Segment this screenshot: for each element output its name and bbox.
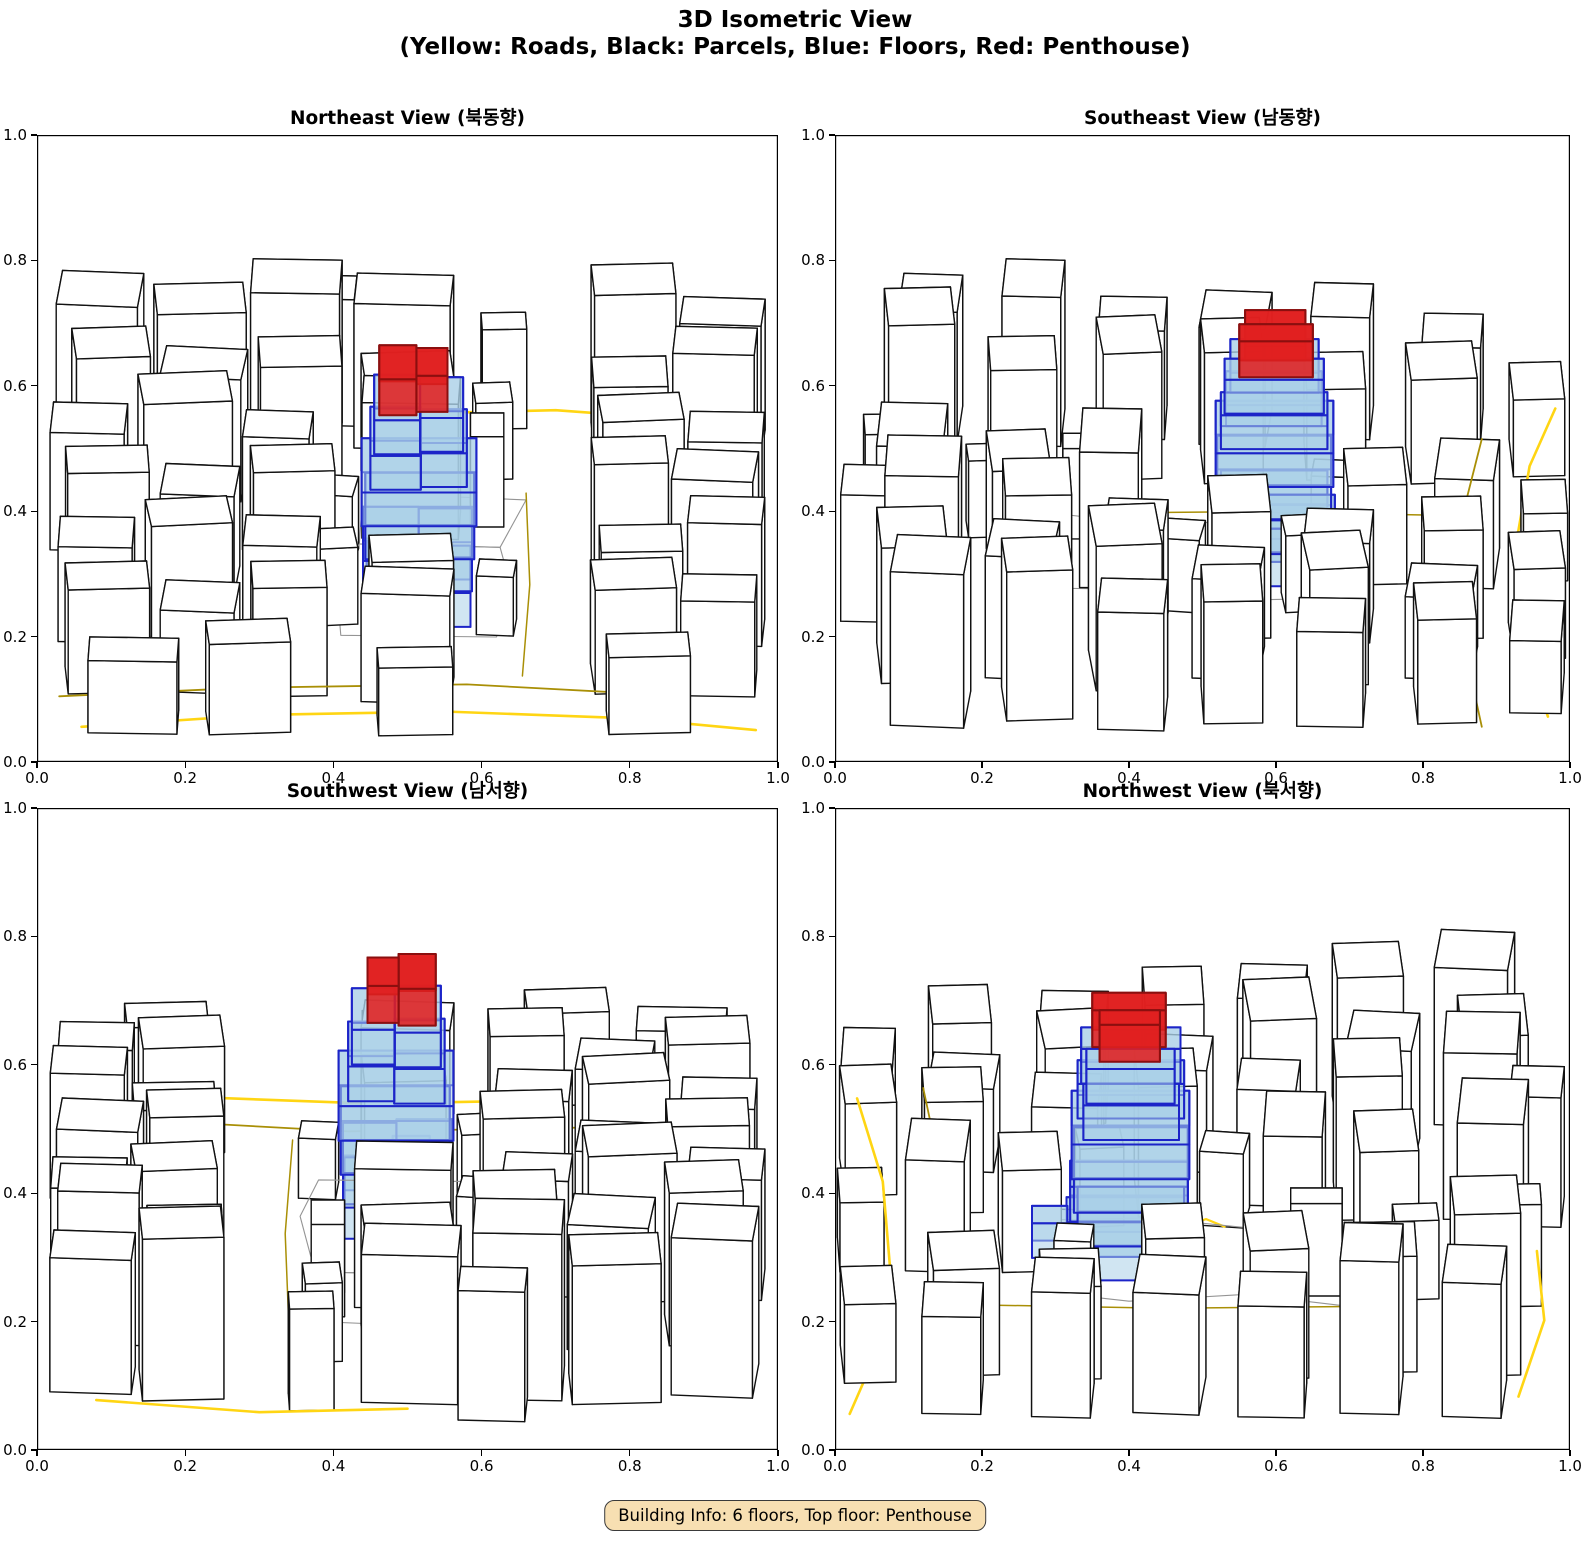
y-tick-label: 0.0	[781, 753, 825, 771]
y-tick	[829, 511, 835, 512]
subplot-title-northwest: Northwest View (북서향)	[835, 777, 1570, 803]
plot-canvas-southeast	[835, 135, 1570, 762]
y-tick	[31, 636, 37, 637]
y-tick	[31, 260, 37, 261]
building-info-badge: Building Info: 6 floors, Top floor: Pent…	[604, 1500, 986, 1531]
y-tick	[829, 761, 835, 762]
y-tick-label: 0.6	[0, 1056, 27, 1074]
x-tick	[1275, 1450, 1276, 1456]
x-tick	[185, 762, 186, 768]
y-tick	[829, 385, 835, 386]
y-tick-label: 0.4	[0, 502, 27, 520]
y-tick	[829, 260, 835, 261]
y-tick-label: 0.0	[0, 1441, 27, 1459]
y-tick	[31, 807, 37, 808]
x-tick-label: 0.0	[811, 1457, 859, 1475]
y-tick	[31, 1321, 37, 1322]
y-tick	[31, 385, 37, 386]
plot-canvas-southwest	[37, 808, 778, 1450]
y-tick-label: 0.2	[0, 628, 27, 646]
x-tick	[481, 1450, 482, 1456]
y-tick	[31, 511, 37, 512]
y-tick-label: 0.8	[781, 927, 825, 945]
y-tick	[31, 1449, 37, 1450]
x-tick	[834, 1450, 835, 1456]
x-tick	[629, 1450, 630, 1456]
y-tick-label: 1.0	[0, 126, 27, 144]
y-tick	[31, 761, 37, 762]
x-tick	[629, 762, 630, 768]
x-tick-label: 0.6	[458, 1457, 506, 1475]
subplot-southeast: Southeast View (남동향) 0.00.00.20.20.40.40…	[835, 135, 1570, 762]
y-tick	[829, 807, 835, 808]
y-tick	[31, 1064, 37, 1065]
x-tick	[777, 762, 778, 768]
y-tick	[829, 134, 835, 135]
y-tick-label: 0.2	[0, 1313, 27, 1331]
x-tick	[1275, 762, 1276, 768]
y-tick	[31, 936, 37, 937]
x-tick-label: 1.0	[1546, 1457, 1590, 1475]
y-tick-label: 0.8	[0, 927, 27, 945]
y-tick	[829, 1193, 835, 1194]
figure-title: 3D Isometric View	[0, 7, 1590, 33]
x-tick	[834, 762, 835, 768]
y-tick	[31, 134, 37, 135]
x-tick	[36, 762, 37, 768]
y-tick-label: 0.6	[0, 377, 27, 395]
x-tick-label: 0.2	[161, 1457, 209, 1475]
x-tick	[333, 1450, 334, 1456]
y-tick-label: 0.2	[781, 1313, 825, 1331]
x-tick	[36, 1450, 37, 1456]
y-tick-label: 1.0	[0, 799, 27, 817]
x-tick	[1422, 1450, 1423, 1456]
y-tick-label: 0.4	[781, 502, 825, 520]
y-tick-label: 0.8	[0, 251, 27, 269]
x-tick	[777, 1450, 778, 1456]
y-tick	[829, 1064, 835, 1065]
x-tick	[481, 762, 482, 768]
subplot-northeast: Northeast View (북동향) 0.00.00.20.20.40.40…	[37, 135, 778, 762]
y-tick-label: 0.2	[781, 628, 825, 646]
subplot-title-northeast: Northeast View (북동향)	[37, 104, 778, 130]
figure-subtitle: (Yellow: Roads, Black: Parcels, Blue: Fl…	[0, 34, 1590, 60]
y-tick-label: 0.0	[781, 1441, 825, 1459]
y-tick-label: 1.0	[781, 126, 825, 144]
x-tick-label: 0.4	[309, 1457, 357, 1475]
y-tick	[31, 1193, 37, 1194]
y-tick-label: 0.4	[781, 1184, 825, 1202]
x-tick-label: 0.2	[958, 1457, 1006, 1475]
y-tick	[829, 1449, 835, 1450]
x-tick-label: 0.4	[1105, 1457, 1153, 1475]
x-tick	[1128, 1450, 1129, 1456]
x-tick	[1422, 762, 1423, 768]
subplot-northwest: Northwest View (북서향) 0.00.00.20.20.40.40…	[835, 808, 1570, 1450]
x-tick	[981, 762, 982, 768]
x-tick-label: 0.8	[1399, 1457, 1447, 1475]
x-tick-label: 0.6	[1252, 1457, 1300, 1475]
subplot-title-southeast: Southeast View (남동향)	[835, 104, 1570, 130]
x-tick	[981, 1450, 982, 1456]
y-tick-label: 0.6	[781, 1056, 825, 1074]
x-tick	[333, 762, 334, 768]
x-tick	[1569, 1450, 1570, 1456]
x-tick	[1569, 762, 1570, 768]
plot-canvas-northwest	[835, 808, 1570, 1450]
y-tick-label: 0.6	[781, 377, 825, 395]
y-tick-label: 0.4	[0, 1184, 27, 1202]
y-tick-label: 1.0	[781, 799, 825, 817]
x-tick-label: 0.0	[13, 1457, 61, 1475]
x-tick-label: 1.0	[754, 1457, 802, 1475]
x-tick	[185, 1450, 186, 1456]
y-tick-label: 0.0	[0, 753, 27, 771]
y-tick	[829, 936, 835, 937]
x-tick	[1128, 762, 1129, 768]
y-tick	[829, 636, 835, 637]
subplot-southwest: Southwest View (남서향) 0.00.00.20.20.40.40…	[37, 808, 778, 1450]
plot-canvas-northeast	[37, 135, 778, 762]
y-tick	[829, 1321, 835, 1322]
x-tick-label: 0.8	[606, 1457, 654, 1475]
y-tick-label: 0.8	[781, 251, 825, 269]
subplot-title-southwest: Southwest View (남서향)	[37, 777, 778, 803]
